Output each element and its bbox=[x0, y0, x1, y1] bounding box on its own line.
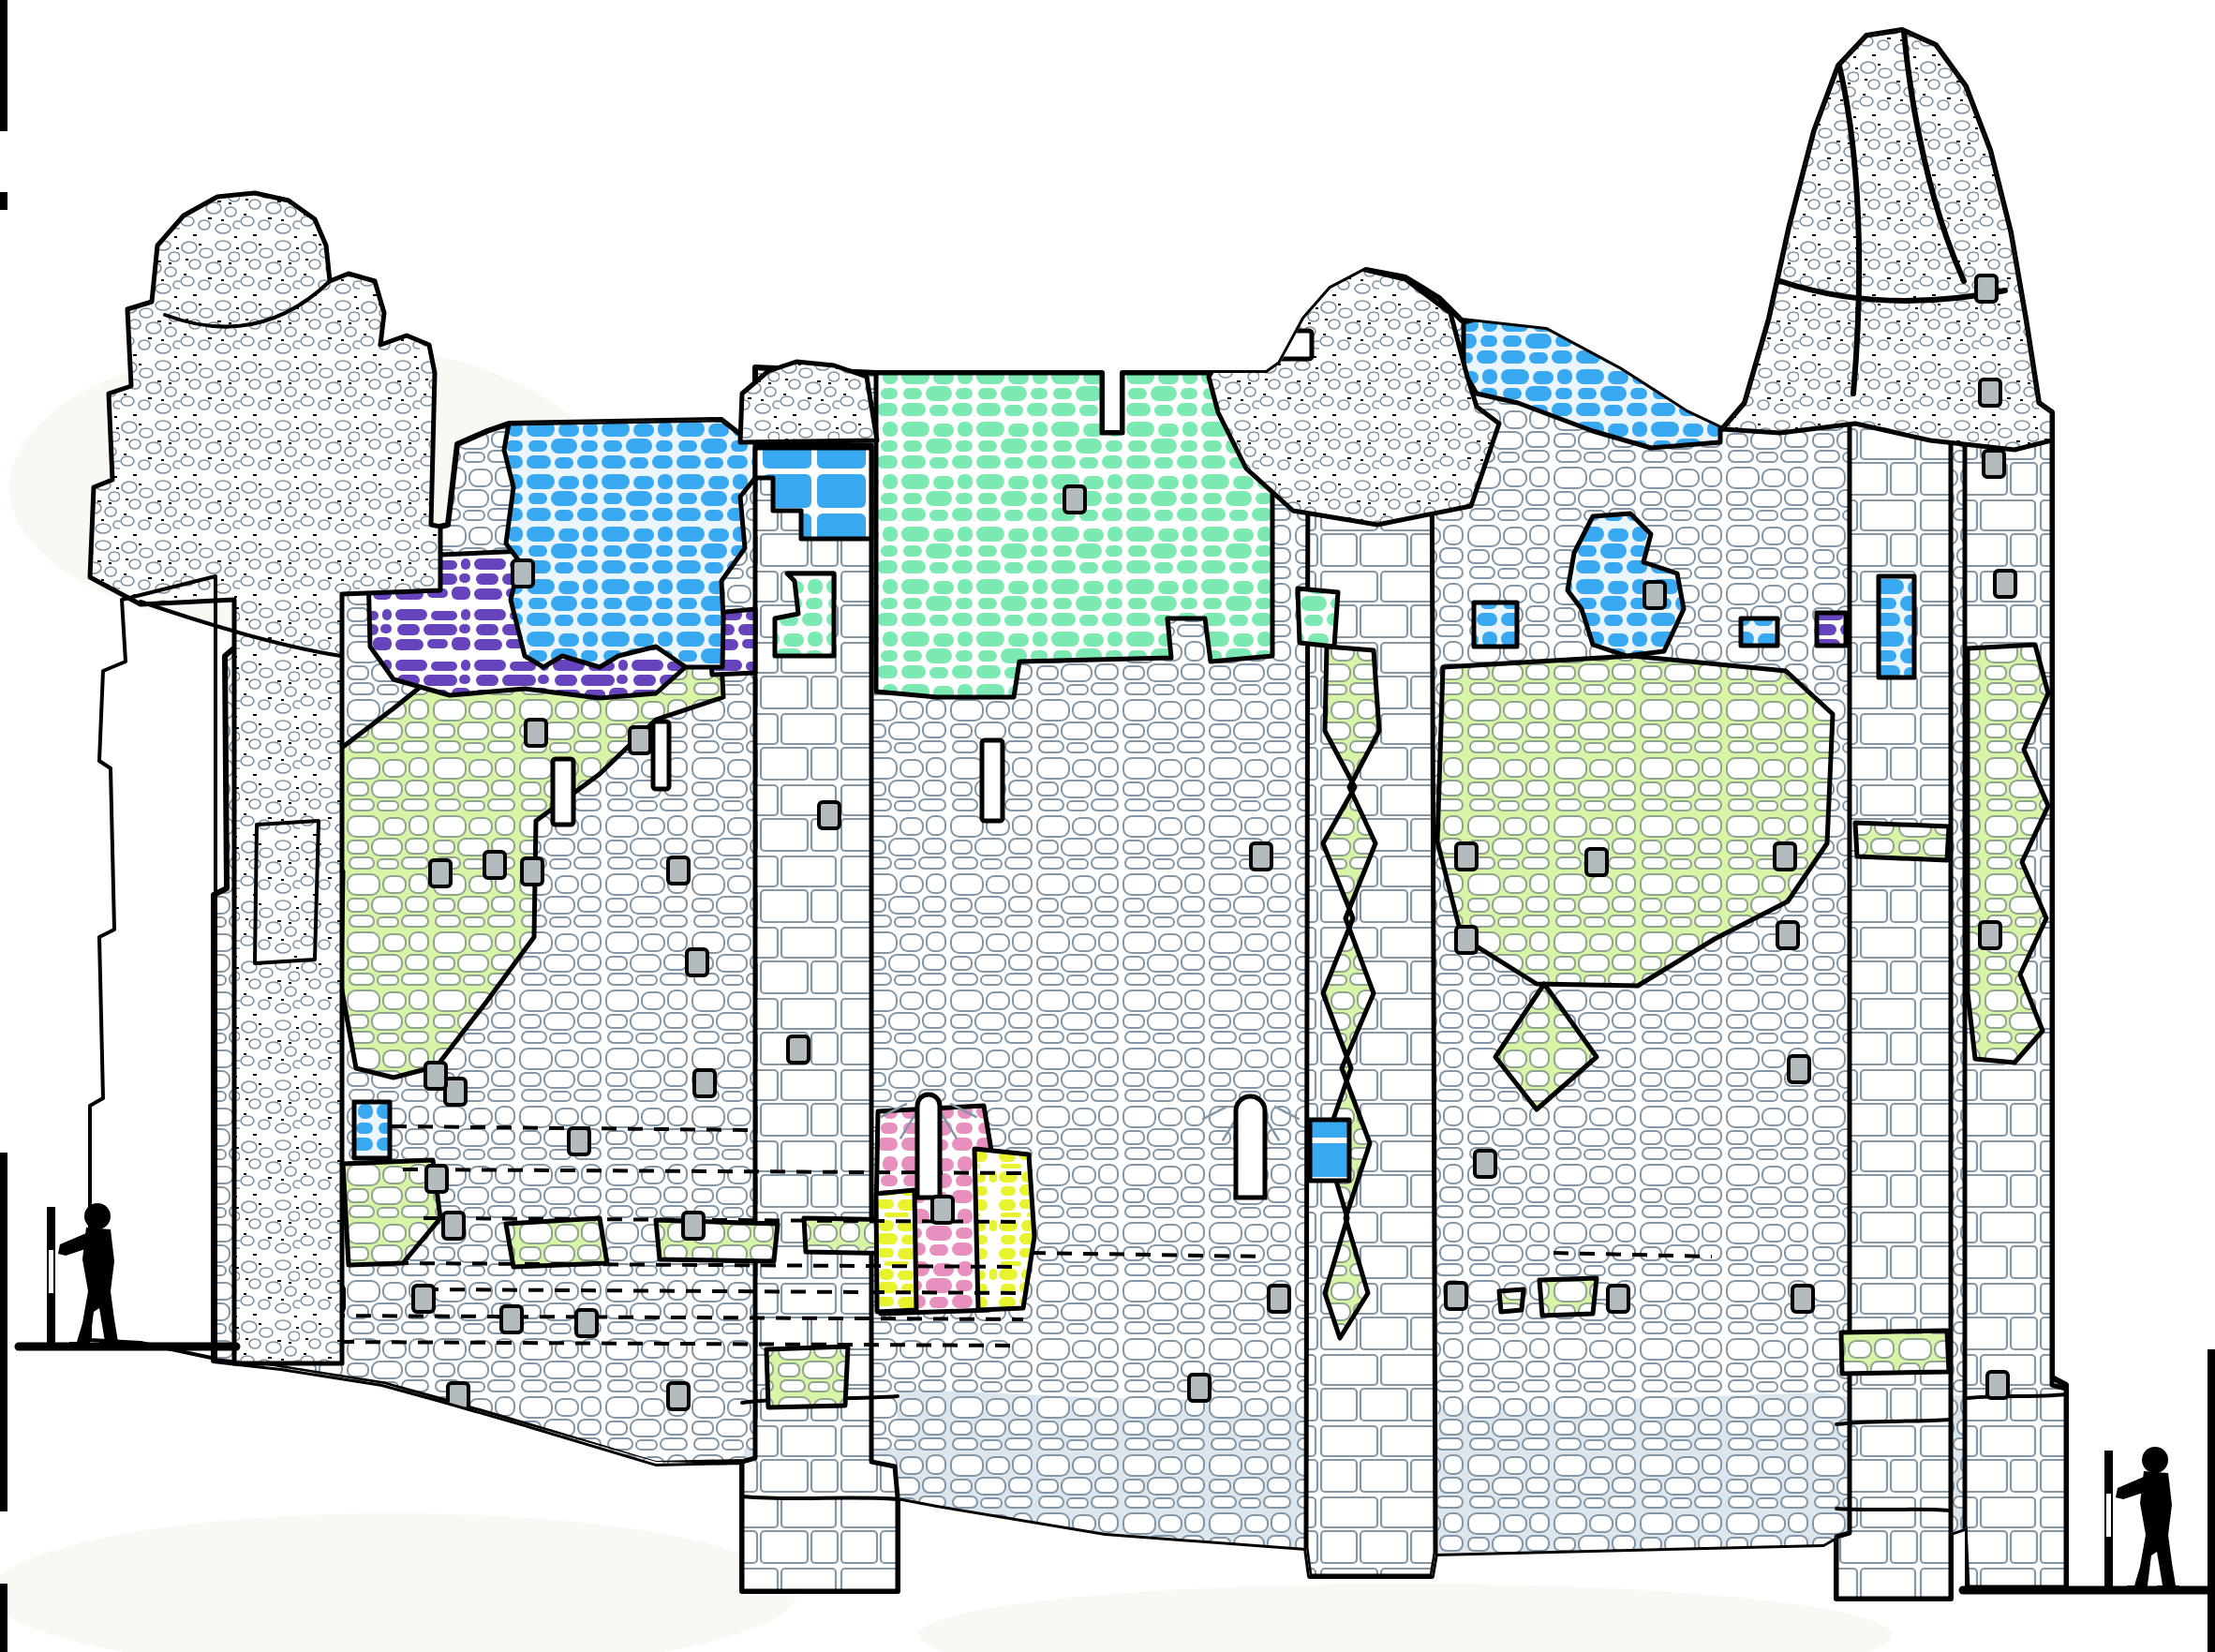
putlog-hole bbox=[443, 1213, 464, 1239]
putlog-hole bbox=[1712, 289, 1732, 315]
putlog-hole bbox=[425, 1063, 446, 1089]
putlog-hole bbox=[788, 1036, 809, 1063]
putlog-hole bbox=[1644, 582, 1665, 608]
elevation-drawing-page bbox=[0, 0, 2215, 1652]
phase-blue-main bbox=[504, 420, 755, 667]
putlog-hole bbox=[668, 1383, 689, 1409]
putlog-hole bbox=[819, 802, 840, 828]
putlog-hole bbox=[1789, 1056, 1809, 1082]
putlog-hole bbox=[513, 560, 533, 587]
putlog-hole bbox=[413, 1286, 434, 1312]
putlog-hole bbox=[1987, 1372, 2008, 1398]
putlog-hole bbox=[1064, 486, 1085, 513]
putlog-hole bbox=[1608, 1286, 1628, 1312]
putlog-hole bbox=[445, 1079, 466, 1105]
putlog-hole bbox=[1446, 1283, 1466, 1309]
phase-mint-main bbox=[876, 373, 1272, 697]
putlog-hole bbox=[687, 949, 707, 975]
putlog-hole bbox=[426, 1166, 447, 1192]
putlog-hole bbox=[932, 1197, 953, 1223]
putlog-hole bbox=[1980, 922, 2000, 948]
putlog-hole bbox=[1251, 843, 1271, 870]
putlog-hole bbox=[694, 1070, 715, 1096]
putlog-hole bbox=[576, 1310, 597, 1336]
buttress-3 bbox=[1836, 320, 1951, 1599]
putlog-hole bbox=[1980, 380, 2000, 406]
putlog-hole bbox=[522, 858, 543, 885]
putlog-hole bbox=[430, 860, 451, 886]
window-slit bbox=[917, 1094, 940, 1198]
putlog-hole bbox=[1777, 922, 1798, 948]
putlog-hole bbox=[1456, 927, 1477, 953]
putlog-hole bbox=[1475, 1151, 1495, 1177]
putlog-hole bbox=[1189, 1375, 1210, 1401]
window-slit bbox=[982, 740, 1003, 821]
putlog-hole bbox=[1456, 843, 1477, 870]
scale-figure-right bbox=[2104, 1447, 2179, 1592]
putlog-hole bbox=[630, 727, 650, 753]
window-slit bbox=[553, 759, 573, 825]
putlog-hole bbox=[1995, 571, 2015, 597]
putlog-hole bbox=[569, 1128, 589, 1154]
scale-figure-left bbox=[47, 1203, 122, 1348]
putlog-hole bbox=[683, 1213, 704, 1239]
elevation-drawing bbox=[0, 0, 2215, 1652]
putlog-hole bbox=[1775, 843, 1795, 870]
window-slit bbox=[1236, 1096, 1265, 1198]
putlog-hole bbox=[1792, 1286, 1813, 1312]
putlog-hole bbox=[1269, 1286, 1289, 1312]
putlog-hole bbox=[501, 1306, 522, 1332]
putlog-hole bbox=[1586, 849, 1607, 875]
putlog-hole bbox=[526, 720, 546, 746]
putlog-hole bbox=[668, 857, 689, 884]
putlog-hole bbox=[484, 852, 505, 878]
window-slit bbox=[653, 722, 669, 789]
putlog-hole bbox=[1984, 451, 2004, 477]
putlog-hole bbox=[1976, 275, 1997, 302]
